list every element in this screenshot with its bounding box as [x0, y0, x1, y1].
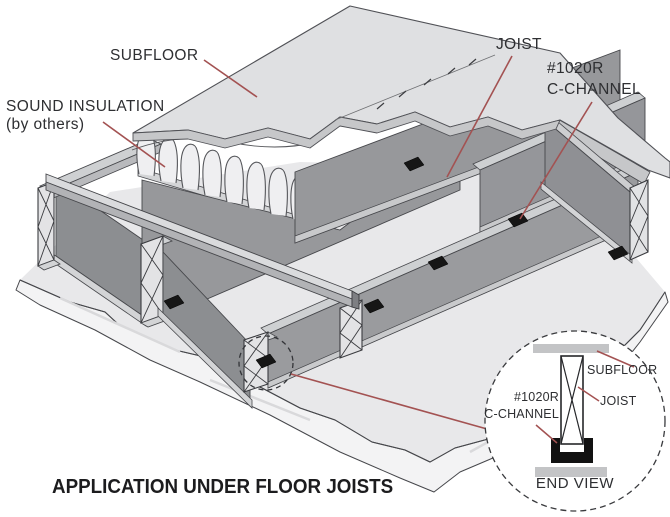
subfloor-label: SUBFLOOR — [110, 47, 198, 64]
isometric-floor-diagram — [0, 0, 670, 517]
joist-label: JOIST — [496, 36, 542, 53]
diagram-caption: APPLICATION UNDER FLOOR JOISTS — [52, 476, 393, 499]
detail-c-channel-name-label: C-CHANNEL — [477, 408, 559, 422]
detail-c-channel-model-label: #1020R — [489, 391, 559, 405]
sound-insulation-note-label: (by others) — [6, 116, 84, 133]
c-channel-name-label: C-CHANNEL — [547, 81, 641, 98]
diagram-page: SUBFLOOR SOUND INSULATION (by others) JO… — [0, 0, 670, 517]
detail-joist-label: JOIST — [600, 395, 636, 409]
detail-subfloor-label: SUBFLOOR — [587, 364, 657, 378]
c-channel-model-label: #1020R — [547, 60, 604, 77]
end-view-label: END VIEW — [523, 475, 627, 492]
sound-insulation-label: SOUND INSULATION — [6, 98, 165, 115]
joist-end-face — [38, 182, 54, 266]
